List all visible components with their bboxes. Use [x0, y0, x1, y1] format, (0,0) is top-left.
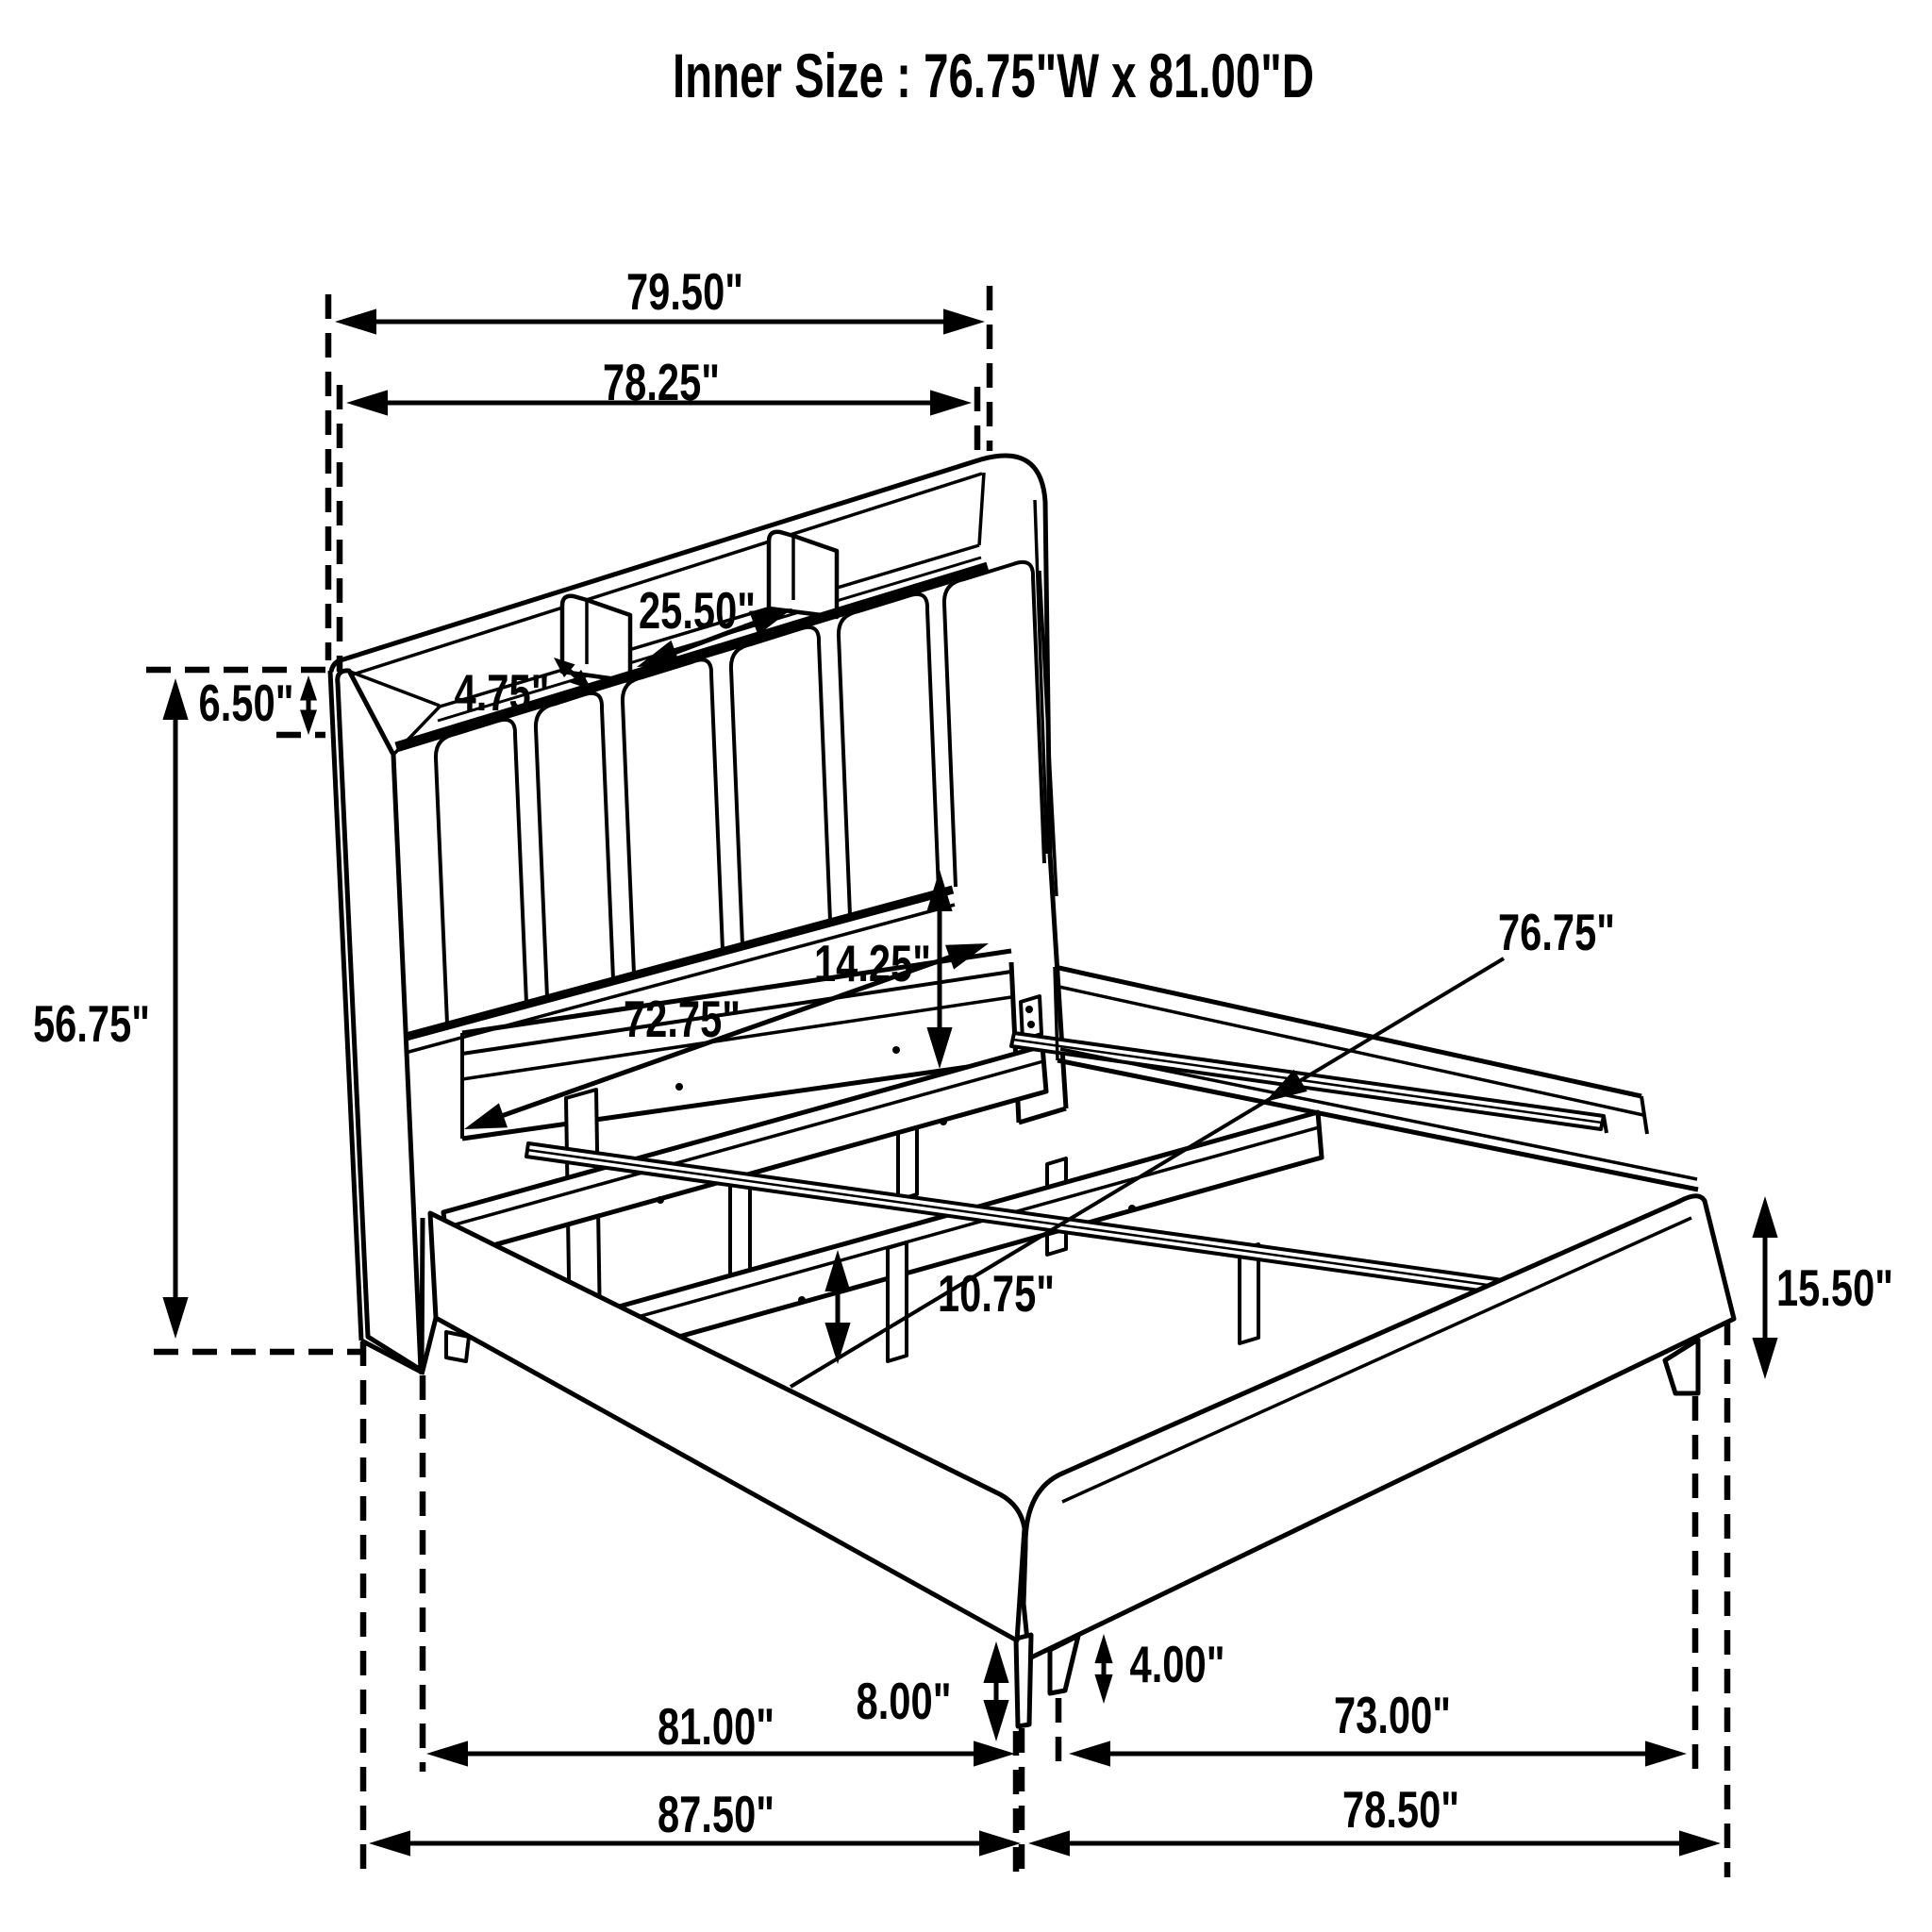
svg-text:4.00": 4.00" — [1130, 1635, 1225, 1693]
svg-text:73.00": 73.00" — [1334, 1686, 1451, 1744]
svg-text:78.50": 78.50" — [1342, 1780, 1459, 1839]
svg-text:81.00": 81.00" — [658, 1697, 774, 1756]
svg-text:4.75": 4.75" — [455, 663, 550, 722]
svg-text:10.75": 10.75" — [938, 1264, 1055, 1323]
svg-text:8.00": 8.00" — [857, 1672, 952, 1730]
svg-text:15.50": 15.50" — [1776, 1258, 1893, 1317]
svg-text:56.75": 56.75" — [33, 994, 150, 1053]
svg-text:6.50": 6.50" — [199, 674, 294, 732]
svg-text:79.50": 79.50" — [626, 262, 743, 321]
svg-text:Inner Size : 76.75"W x 81.00"D: Inner Size : 76.75"W x 81.00"D — [673, 41, 1314, 110]
svg-text:76.75": 76.75" — [1498, 903, 1615, 961]
svg-text:87.50": 87.50" — [658, 1785, 774, 1843]
